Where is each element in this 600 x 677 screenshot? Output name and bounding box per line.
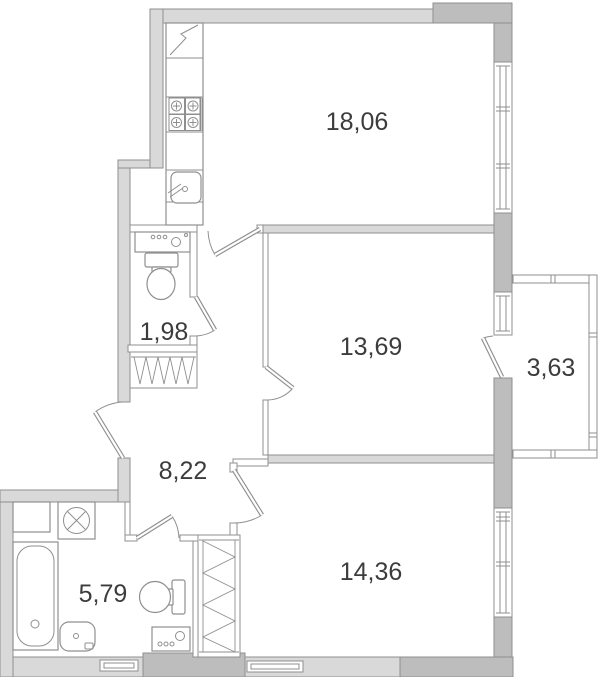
window-living-room (494, 62, 512, 213)
wall-right-pier-4 (494, 617, 512, 657)
door-bathroom (137, 516, 179, 538)
wall-left-step (0, 490, 128, 502)
wall-left-lower (0, 490, 13, 677)
door-kitchen (208, 229, 260, 255)
area-label-bathroom: 5,79 (79, 580, 128, 608)
kitchen-sink-icon (168, 172, 201, 203)
floor-plan-drawing: 18,06 13,69 3,63 1,98 8,22 5,79 14,36 (0, 0, 600, 677)
washbasin-icon (60, 622, 95, 651)
wc-wall-right-upper (190, 232, 197, 297)
floor-plan: 18,06 13,69 3,63 1,98 8,22 5,79 14,36 (0, 0, 600, 677)
wall-left-upper-a (118, 160, 130, 402)
door-room-2 (266, 367, 293, 400)
room2-wall-left-upper (263, 233, 268, 367)
door-balcony (483, 336, 502, 377)
hall-room3-stub (233, 459, 268, 466)
bathroom-wall-top-right (180, 535, 198, 541)
bathroom-hall-wall (125, 502, 130, 535)
wall-room2-room3 (268, 455, 494, 463)
window-balcony (494, 292, 512, 335)
area-label-wc: 1,98 (140, 318, 189, 346)
wall-left-upper-b (118, 458, 130, 502)
vent-shaft-main (198, 535, 240, 657)
water-heater-icon (152, 627, 190, 651)
exterior-walls (0, 3, 513, 677)
wc-toilet-icon (145, 253, 178, 300)
door-entrance (95, 402, 123, 458)
wall-bottom-block-2 (400, 657, 513, 677)
area-label-room-2: 13,69 (340, 333, 403, 361)
bathroom-wall-top-left (125, 535, 137, 541)
wc-counter-icon (135, 232, 190, 252)
bathtub-icon (13, 542, 58, 650)
vent-shaft-icon (198, 535, 240, 657)
basement-window-right (247, 661, 303, 672)
room2-wall-left-lower (263, 400, 268, 455)
door-room-3 (234, 470, 262, 523)
wall-kitchen-left (150, 9, 163, 168)
wc-wall-top (130, 225, 197, 232)
area-label-balcony: 3,63 (527, 354, 576, 382)
area-label-living-room: 18,06 (326, 108, 389, 136)
wall-right-pier-2 (494, 213, 512, 292)
wall-right-pier-3 (494, 378, 512, 508)
wall-top-right-block (433, 3, 512, 23)
door-wc (196, 297, 215, 336)
area-label-room-3: 14,36 (340, 558, 403, 586)
vent-shaft-wc (130, 352, 197, 388)
bathroom-toilet-icon (140, 580, 186, 614)
window-room-3 (494, 508, 512, 617)
wall-right-pier-1 (494, 23, 512, 62)
bathroom-wall-right (193, 541, 198, 657)
wall-top (150, 9, 433, 23)
bathroom-cabinet-icon (13, 502, 50, 532)
wc-wall-bottom (128, 345, 197, 352)
basement-window-left (100, 660, 138, 671)
wall-livingroom-room2 (263, 225, 494, 233)
area-label-hallway: 8,22 (159, 457, 208, 485)
washing-machine-icon (58, 502, 95, 539)
